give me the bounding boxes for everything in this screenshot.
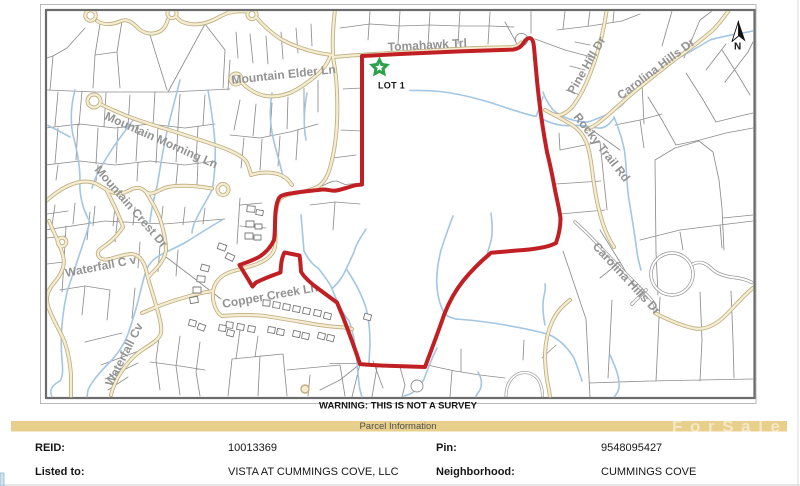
svg-text:LOT 1: LOT 1 [378,81,405,91]
svg-text:N: N [734,42,741,53]
svg-text:Parcel Information: Parcel Information [359,421,436,432]
svg-text:Listed to:: Listed to: [35,466,85,478]
svg-text:VISTA AT CUMMINGS COVE, LLC: VISTA AT CUMMINGS COVE, LLC [228,466,399,478]
svg-text:CUMMINGS COVE: CUMMINGS COVE [601,466,696,478]
svg-text:10013369: 10013369 [228,442,277,454]
svg-text:9548095427: 9548095427 [601,442,662,454]
svg-text:Neighborhood:: Neighborhood: [436,466,515,478]
svg-text:WARNING: THIS IS NOT A SURVEY: WARNING: THIS IS NOT A SURVEY [319,401,478,412]
svg-text:REID:: REID: [35,442,65,454]
svg-text:Pin:: Pin: [436,442,457,454]
